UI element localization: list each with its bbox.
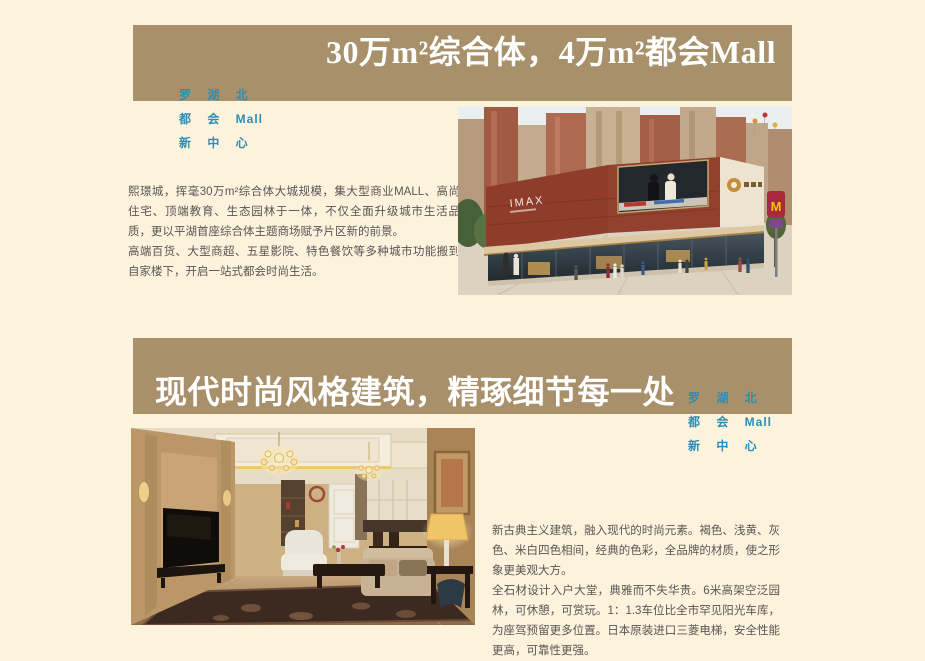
interior-paragraph-1: 新古典主义建筑，融入现代的时尚元素。褐色、浅黄、灰色、米白四色相间，经典的色彩，… <box>492 521 780 581</box>
mall-exterior-rendering-photo: IMAX <box>458 107 792 295</box>
wall-sconce <box>139 482 149 502</box>
brand-line-new-center: 新 中 心 <box>179 137 263 149</box>
living-room-interior-photo <box>131 428 475 625</box>
brand-line-metro-mall: 都 会 Mall <box>688 416 772 428</box>
brand-block-bottom: 罗 湖 北 都 会 Mall 新 中 心 <box>688 392 772 464</box>
brand-line-metro-mall: 都 会 Mall <box>179 113 263 125</box>
mall-paragraph-1: 熙璟城，挥毫30万m²综合体大城规模，集大型商业MALL、高尚住宅、顶端教育、生… <box>128 182 460 242</box>
ornate-chair <box>437 579 465 608</box>
mall-section-title: 30万m²综合体，4万m²都会Mall <box>326 36 776 68</box>
living-room-illustration <box>131 428 475 625</box>
mall-exterior-illustration: IMAX <box>458 107 792 295</box>
interior-section-copy: 新古典主义建筑，融入现代的时尚元素。褐色、浅黄、灰色、米白四色相间，经典的色彩，… <box>492 521 780 661</box>
billboard <box>618 160 708 213</box>
mcdonalds-m-glyph: M <box>771 199 782 214</box>
interior-paragraph-2: 全石材设计入户大堂，典雅而不失华贵。6米高架空泛园林，可休憩，可赏玩。1：1.3… <box>492 581 780 661</box>
brand-line-luohu-north: 罗 湖 北 <box>179 89 263 101</box>
wall-sconce <box>223 490 231 506</box>
mall-section-copy: 熙璟城，挥毫30万m²综合体大城规模，集大型商业MALL、高尚住宅、顶端教育、生… <box>128 182 460 282</box>
brand-line-luohu-north: 罗 湖 北 <box>688 392 772 404</box>
brand-block-top: 罗 湖 北 都 会 Mall 新 中 心 <box>179 89 263 161</box>
mall-paragraph-2: 高端百货、大型商超、五星影院、特色餐饮等多种城市功能搬到自家楼下，开启一站式都会… <box>128 242 460 282</box>
interior-section-title: 现代时尚风格建筑，精琢细节每一处 <box>155 376 675 408</box>
brand-line-new-center: 新 中 心 <box>688 440 772 452</box>
